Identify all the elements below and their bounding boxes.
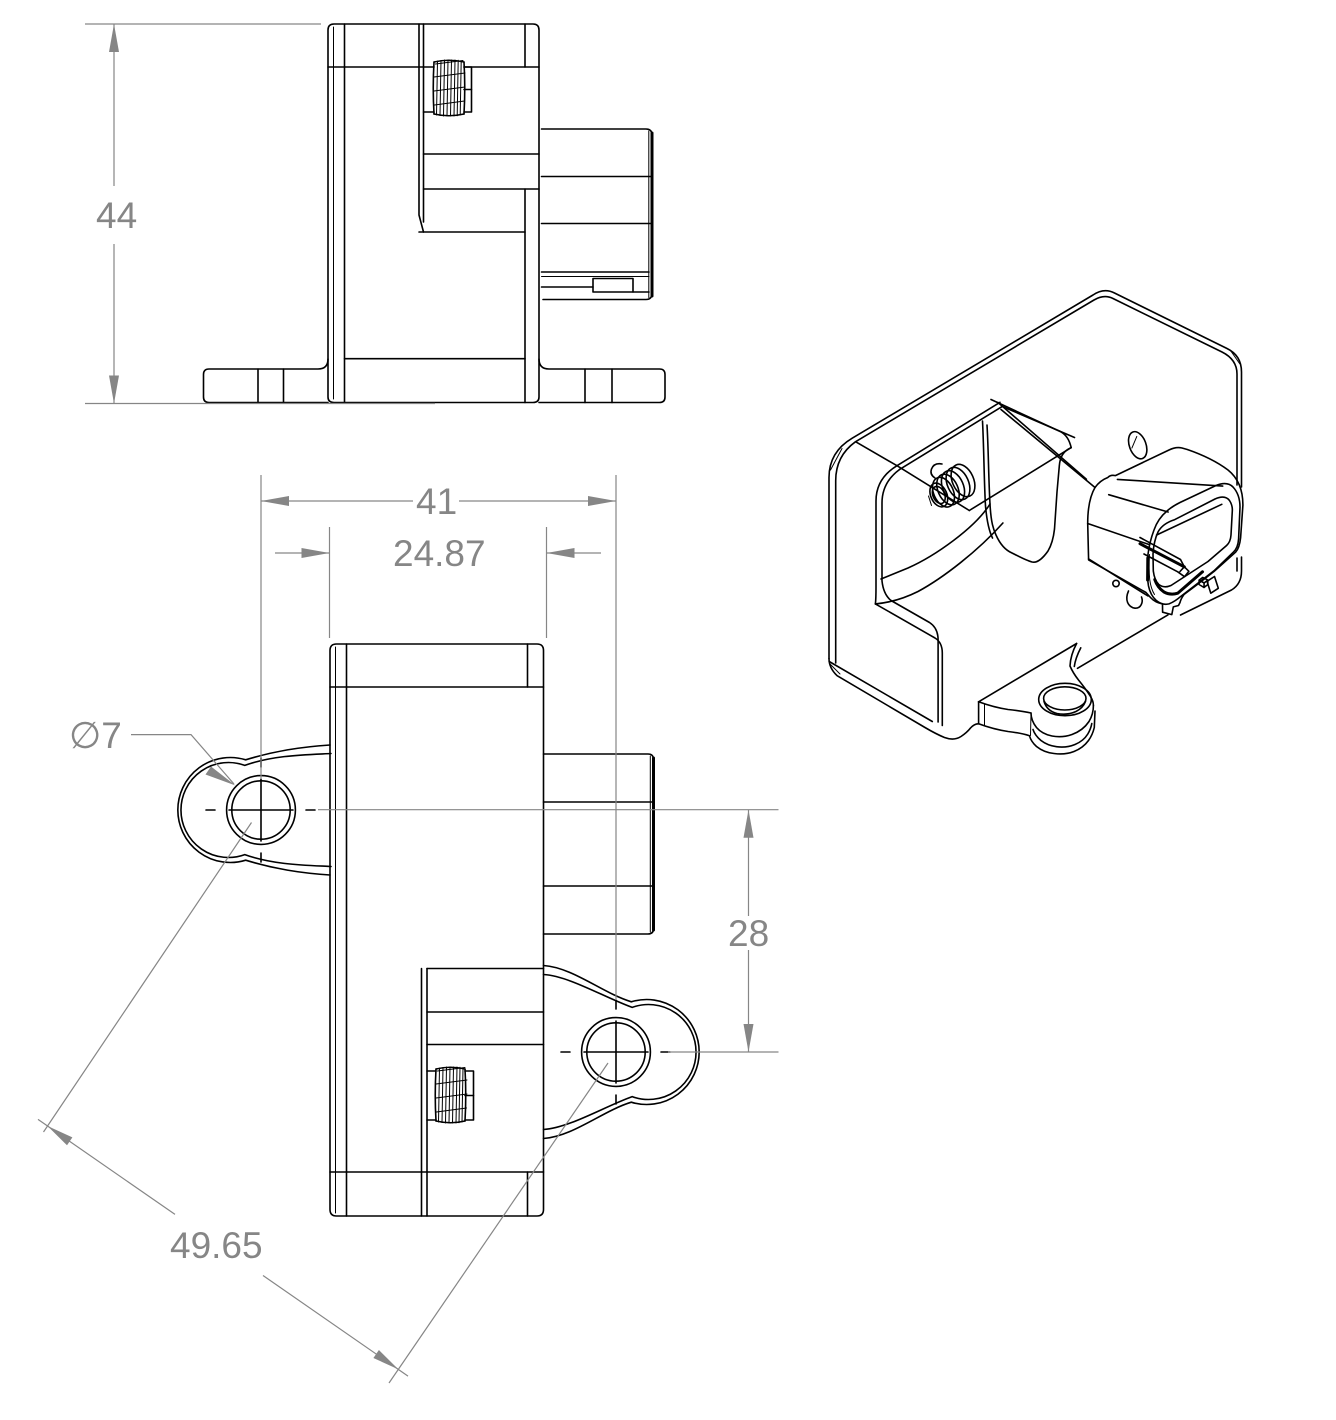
svg-text:49.65: 49.65 xyxy=(170,1225,263,1266)
svg-text:∅7: ∅7 xyxy=(69,715,122,756)
svg-text:44: 44 xyxy=(96,195,137,236)
svg-text:28: 28 xyxy=(728,913,769,954)
svg-text:41: 41 xyxy=(416,481,457,522)
svg-text:24.87: 24.87 xyxy=(393,533,486,574)
